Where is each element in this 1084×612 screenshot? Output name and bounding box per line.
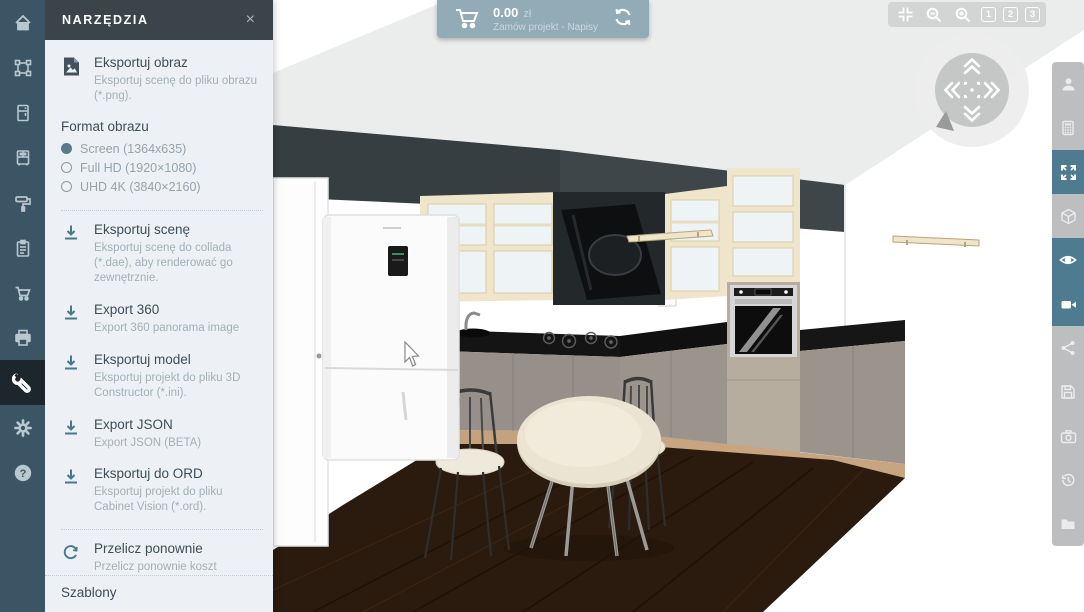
- tall-oven-column[interactable]: [727, 168, 800, 458]
- export-360-item[interactable]: Export 360 Export 360 panorama image: [45, 293, 273, 343]
- format-label: Format obrazu: [61, 119, 259, 134]
- view-preset-2-button[interactable]: 2: [1003, 7, 1018, 22]
- toolbar-item-walkthrough[interactable]: [1052, 282, 1084, 326]
- right-toolbar: [1052, 62, 1084, 546]
- eye-icon: [1059, 251, 1077, 269]
- download-icon: [61, 222, 83, 286]
- select-transform-icon: [13, 58, 33, 78]
- built-in-oven[interactable]: [730, 285, 797, 357]
- sidebar-item-home[interactable]: [0, 0, 45, 45]
- sidebar-item-tools[interactable]: [0, 360, 45, 405]
- divider: [61, 529, 263, 530]
- sidebar-item-help[interactable]: ?: [0, 450, 45, 495]
- sidebar-item-base-cabinets[interactable]: [0, 135, 45, 180]
- history-icon: [1060, 472, 1076, 488]
- tools-panel-body: Eksportuj obraz Eksportuj scenę do pliku…: [45, 40, 273, 575]
- tools-panel-header: NARZĘDZIA ×: [45, 0, 273, 40]
- export-json-item[interactable]: Export JSON Export JSON (BETA): [45, 408, 273, 458]
- close-icon[interactable]: ×: [242, 10, 259, 30]
- toolbar-item-share[interactable]: [1052, 326, 1084, 370]
- zoom-out-button[interactable]: [923, 4, 945, 25]
- home-icon: [13, 13, 33, 33]
- calculator-icon: [1060, 120, 1076, 136]
- download-icon: [61, 417, 83, 451]
- room-door[interactable]: [273, 178, 328, 546]
- download-icon: [61, 302, 83, 336]
- format-option-uhd4k[interactable]: UHD 4K (3840×2160): [61, 180, 259, 194]
- photo-camera-icon: [1060, 428, 1077, 445]
- sidebar-item-print[interactable]: [0, 315, 45, 360]
- toolbar-item-screenshot[interactable]: [1052, 414, 1084, 458]
- export-image-icon: [61, 55, 83, 104]
- download-icon: [61, 466, 83, 515]
- gear-icon: [13, 418, 33, 438]
- radio-icon[interactable]: [61, 181, 72, 192]
- upper-cabinets-right[interactable]: [665, 186, 727, 300]
- order-project-bar[interactable]: 0.00 zł Zamów projekt - Napisy: [437, 0, 649, 38]
- tall-cabinet-icon: [13, 103, 33, 123]
- export-ord-item[interactable]: Eksportuj do ORD Eksportuj projekt do pl…: [45, 457, 273, 522]
- sidebar-item-tall-cabinets[interactable]: [0, 90, 45, 135]
- order-project-label: Zamów projekt - Napisy: [493, 22, 611, 33]
- toolbar-item-save[interactable]: [1052, 370, 1084, 414]
- fullscreen-icon: [1060, 164, 1077, 181]
- item-desc: Eksportuj scenę do pliku obrazu (*.png).: [94, 74, 258, 104]
- kitchen-planner-app: ? NARZĘDZIA × Eksportuj obraz Eksportuj …: [0, 0, 1084, 612]
- radio-icon[interactable]: [61, 162, 72, 173]
- divider: [61, 210, 263, 211]
- format-option-fullhd[interactable]: Full HD (1920×1080): [61, 161, 259, 175]
- camera-navigation-compass[interactable]: [914, 32, 1030, 148]
- panel-title: NARZĘDZIA: [62, 13, 242, 27]
- export-image-item[interactable]: Eksportuj obraz Eksportuj scenę do pliku…: [45, 46, 273, 111]
- view-preset-3-button[interactable]: 3: [1025, 7, 1040, 22]
- export-model-item[interactable]: Eksportuj model Eksportuj projekt do pli…: [45, 343, 273, 408]
- toolbar-item-history[interactable]: [1052, 458, 1084, 502]
- format-option-screen[interactable]: Screen (1364x635): [61, 142, 259, 156]
- cart-icon: [453, 4, 483, 35]
- tools-panel: NARZĘDZIA × Eksportuj obraz Eksportuj sc…: [45, 0, 273, 612]
- base-cabinet-icon: [13, 148, 33, 168]
- order-summary: 0.00 zł Zamów projekt - Napisy: [483, 5, 611, 33]
- radio-selected-icon[interactable]: [61, 143, 72, 154]
- cube-3d-icon: [1060, 208, 1077, 225]
- download-icon: [61, 352, 83, 401]
- zoom-in-button[interactable]: [952, 4, 974, 25]
- clipboard-icon: [13, 238, 33, 258]
- item-title: Eksportuj obraz: [94, 55, 258, 70]
- recalculate-icon: [61, 541, 83, 575]
- sidebar-item-settings[interactable]: [0, 405, 45, 450]
- wrench-icon: [12, 372, 33, 393]
- help-icon: ?: [13, 463, 33, 483]
- save-icon: [1060, 384, 1076, 400]
- sidebar-item-project-list[interactable]: [0, 225, 45, 270]
- sidebar-item-select[interactable]: [0, 45, 45, 90]
- toolbar-item-fullscreen[interactable]: [1052, 150, 1084, 194]
- fit-view-button[interactable]: [894, 4, 916, 25]
- image-format-section: Format obrazu Screen (1364x635) Full HD …: [45, 111, 273, 203]
- video-camera-icon: [1060, 296, 1077, 313]
- templates-section[interactable]: Szablony: [45, 575, 273, 612]
- toolbar-item-projects-folder[interactable]: [1052, 502, 1084, 546]
- refresh-price-icon[interactable]: [611, 5, 637, 34]
- toolbar-item-calculator[interactable]: [1052, 106, 1084, 150]
- cooker-hood[interactable]: [553, 192, 665, 305]
- toolbar-item-3d-view[interactable]: [1052, 194, 1084, 238]
- toolbar-item-account[interactable]: [1052, 62, 1084, 106]
- toolbar-item-visibility[interactable]: [1052, 238, 1084, 282]
- paint-roller-icon: [13, 193, 33, 213]
- export-scene-item[interactable]: Eksportuj scenę Eksportuj scenę do colla…: [45, 213, 273, 293]
- cart-icon: [13, 283, 33, 303]
- sidebar-item-cart[interactable]: [0, 270, 45, 315]
- person-icon: [1060, 76, 1077, 93]
- fridge[interactable]: [323, 215, 459, 460]
- fridge-display: [388, 246, 408, 276]
- printer-icon: [13, 328, 33, 348]
- svg-text:?: ?: [19, 468, 26, 480]
- left-toolbar: ?: [0, 0, 45, 612]
- view-preset-1-button[interactable]: 1: [981, 7, 996, 22]
- sidebar-item-finishes[interactable]: [0, 180, 45, 225]
- currency-label: zł: [523, 8, 531, 20]
- project-price: 0.00: [493, 5, 518, 20]
- recalculate-item[interactable]: Przelicz ponownie Przelicz ponownie kosz…: [45, 532, 273, 575]
- view-controls-bar: 1 2 3: [888, 2, 1046, 27]
- folder-icon: [1060, 516, 1076, 532]
- share-icon: [1060, 340, 1076, 356]
